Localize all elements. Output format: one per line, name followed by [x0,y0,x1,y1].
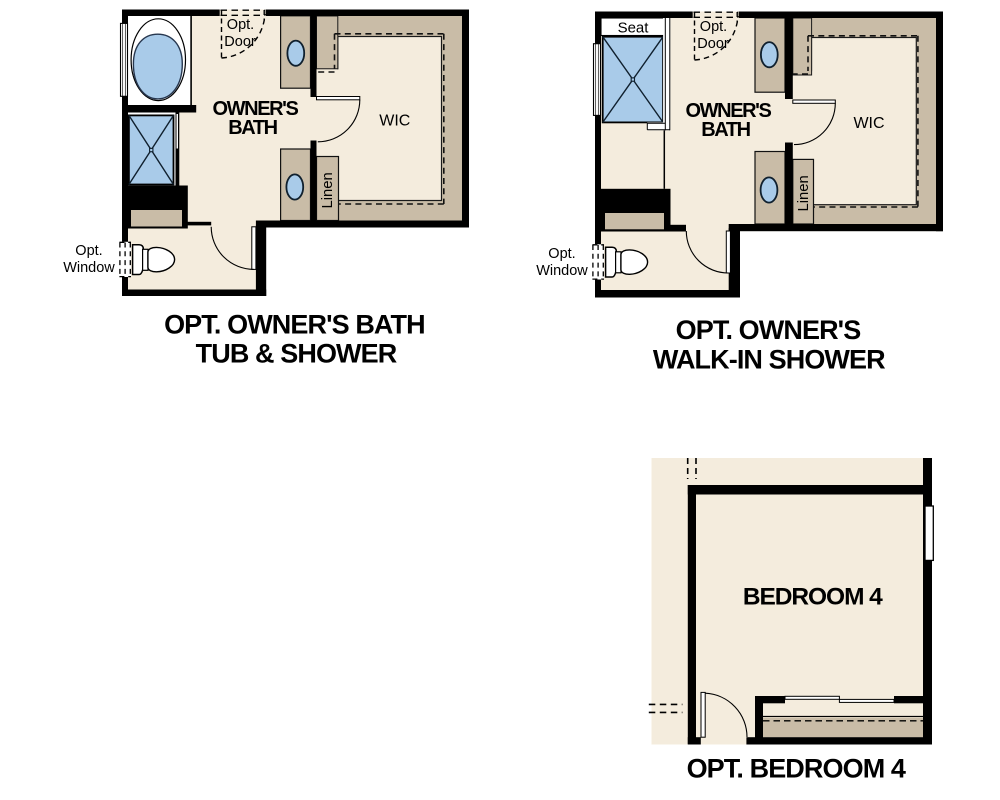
svg-text:TUB & SHOWER: TUB & SHOWER [196,338,397,368]
svg-text:BATH: BATH [701,119,750,141]
svg-text:WIC: WIC [379,113,410,130]
svg-text:Opt.: Opt. [227,17,254,33]
svg-text:WIC: WIC [853,115,884,132]
svg-text:Door: Door [697,36,729,52]
svg-text:Window: Window [63,260,115,276]
svg-text:Linen: Linen [796,175,812,211]
svg-text:BEDROOM 4: BEDROOM 4 [743,583,883,610]
svg-text:OPT. OWNER'S: OPT. OWNER'S [676,315,861,345]
svg-text:Door: Door [224,34,256,50]
svg-text:Opt.: Opt. [75,243,102,259]
svg-text:Opt.: Opt. [700,19,727,35]
svg-text:Linen: Linen [320,172,336,208]
svg-text:Seat: Seat [618,19,650,36]
svg-text:OPT. OWNER'S BATH: OPT. OWNER'S BATH [164,310,425,340]
svg-text:WALK-IN SHOWER: WALK-IN SHOWER [653,344,885,374]
svg-text:BATH: BATH [228,117,277,139]
svg-text:Window: Window [536,263,588,279]
svg-text:Opt.: Opt. [548,246,575,262]
svg-text:OPT. BEDROOM 4: OPT. BEDROOM 4 [687,754,906,784]
